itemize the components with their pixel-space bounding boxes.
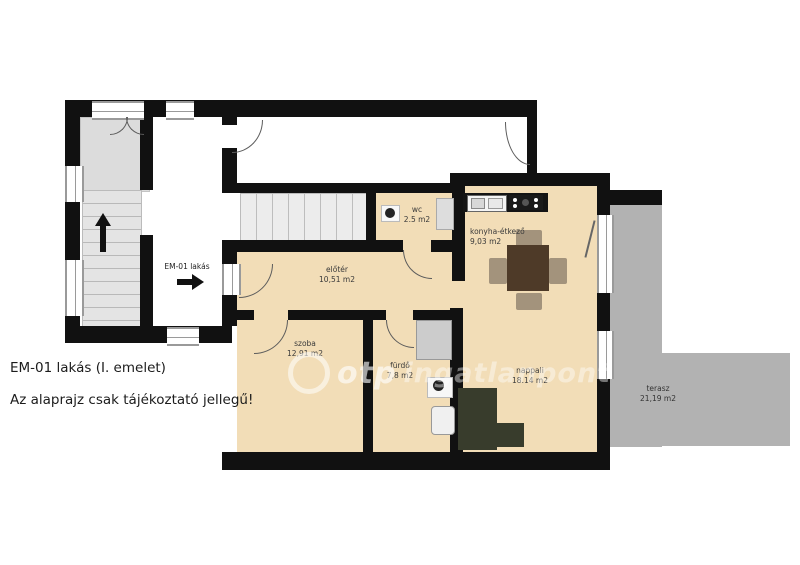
window-right: [597, 331, 614, 379]
room-name: nappali: [500, 366, 560, 376]
dining-chair-east: [549, 258, 567, 284]
wall-vestibule-right-lower: [140, 235, 153, 326]
sink-basin: [471, 198, 485, 209]
dining-table: [507, 245, 549, 291]
burner-center: [522, 199, 529, 206]
wall-room-row-c: [413, 310, 452, 320]
window-left-1: [65, 166, 84, 202]
label-furdo: fürdő 7,8 m2: [375, 361, 425, 381]
furdo-sink: [431, 406, 455, 435]
staircase-upper: [82, 190, 142, 328]
plan-disclaimer: Az alaprajz csak tájékoztató jellegű!: [10, 392, 253, 408]
burner: [513, 198, 517, 202]
wall-stairs-wc-divider: [366, 190, 376, 240]
dining-chair-west: [489, 258, 507, 284]
label-eloter: előtér 10,51 m2: [307, 265, 367, 285]
terrace-door-glass: [597, 215, 614, 293]
burner: [534, 204, 538, 208]
bathtub: [416, 320, 452, 360]
dining-chair-south: [516, 293, 542, 310]
terrace-floor-strip: [610, 205, 662, 447]
room-name: előtér: [307, 265, 367, 275]
room-area: 7,8 m2: [375, 371, 425, 381]
wall-hall-top: [222, 240, 403, 252]
furdo-toilet: [433, 380, 444, 391]
label-corridor-unit: EM-01 lakás: [157, 262, 217, 272]
corridor-top-door-arc: [232, 120, 263, 153]
label-terasz: terasz 21,19 m2: [623, 384, 693, 404]
stairs-up-arrow-shaft: [100, 226, 106, 252]
room-area: 10,51 m2: [307, 275, 367, 285]
room-area: 18.14 m2: [500, 376, 560, 386]
wall-bottom-left: [65, 326, 232, 343]
stove: [509, 195, 543, 210]
burner: [513, 204, 517, 208]
staircase-mid: [240, 193, 368, 242]
label-konyha: konyha-étkező 9,03 m2: [470, 227, 540, 247]
plan-title: EM-01 lakás (I. emelet): [10, 360, 166, 376]
window-top-2: [166, 101, 194, 120]
upper-room-door-arc: [505, 122, 530, 165]
floor-plan: wc 2.5 m2 konyha-étkező 9,03 m2 előtér 1…: [0, 0, 800, 565]
room-area: 9,03 m2: [470, 237, 540, 247]
room-name: fürdő: [375, 361, 425, 371]
window-bottom-left: [167, 327, 199, 346]
sofa-vertical: [458, 388, 497, 450]
corridor-unit-text: EM-01 lakás: [157, 262, 217, 272]
room-name: konyha-étkező: [470, 227, 540, 237]
wall-stairs-top: [222, 183, 463, 193]
label-szoba: szoba 12,91 m2: [275, 339, 335, 359]
wall-szoba-furdo: [363, 318, 373, 452]
corridor-arrow-head: [192, 274, 204, 290]
wall-entry-upper: [222, 250, 237, 264]
wall-bottom: [222, 452, 610, 470]
stair-landing: [222, 193, 240, 240]
corridor-arrow-shaft: [177, 279, 192, 285]
wall-terrace-top: [610, 190, 662, 205]
room-area: 2.5 m2: [392, 215, 442, 225]
wall-room-row-a: [230, 310, 254, 320]
window-left-2: [65, 260, 84, 316]
kitchen-sink: [467, 195, 507, 212]
room-name: wc: [392, 205, 442, 215]
burner: [534, 198, 538, 202]
label-wc: wc 2.5 m2: [392, 205, 442, 225]
label-nappali: nappali 18.14 m2: [500, 366, 560, 386]
room-name: terasz: [623, 384, 693, 394]
sofa-chaise: [497, 423, 524, 447]
room-name: szoba: [275, 339, 335, 349]
sink-drainer: [488, 198, 503, 209]
room-area: 21,19 m2: [623, 394, 693, 404]
room-area: 12,91 m2: [275, 349, 335, 359]
stairs-up-arrow-head: [95, 213, 111, 226]
